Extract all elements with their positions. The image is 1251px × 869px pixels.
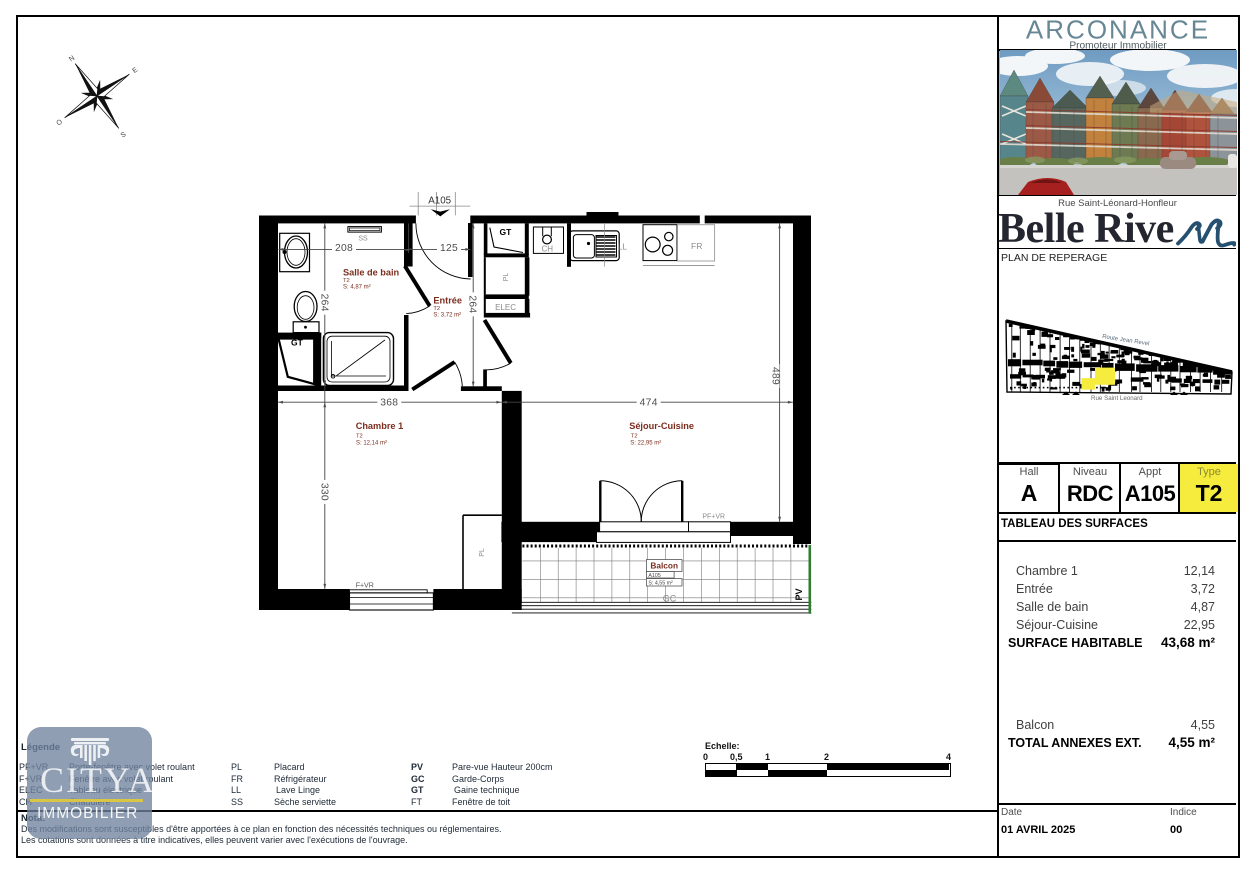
svg-text:GC: GC bbox=[663, 594, 677, 604]
svg-text:Séjour-Cuisine: Séjour-Cuisine bbox=[629, 421, 694, 431]
svg-text:PV: PV bbox=[794, 588, 804, 600]
svg-text:N: N bbox=[68, 55, 76, 64]
svg-text:S: 4,87 m²: S: 4,87 m² bbox=[343, 285, 371, 291]
svg-text:474: 474 bbox=[640, 398, 658, 409]
svg-text:S: 12,14 m²: S: 12,14 m² bbox=[356, 441, 387, 447]
svg-text:Chambre 1: Chambre 1 bbox=[356, 421, 404, 431]
svg-text:T2: T2 bbox=[343, 278, 350, 284]
svg-text:Balcon: Balcon bbox=[650, 561, 678, 571]
svg-text:S: 22,95 m²: S: 22,95 m² bbox=[630, 441, 661, 447]
svg-text:PL: PL bbox=[479, 548, 486, 557]
svg-text:SS: SS bbox=[358, 236, 368, 243]
svg-text:PL: PL bbox=[503, 273, 510, 282]
svg-text:GT: GT bbox=[291, 338, 304, 348]
svg-text:264: 264 bbox=[319, 294, 330, 312]
svg-text:368: 368 bbox=[380, 398, 398, 409]
svg-text:125: 125 bbox=[440, 243, 458, 254]
svg-text:208: 208 bbox=[335, 243, 353, 254]
svg-text:E: E bbox=[132, 66, 140, 75]
svg-text:T2: T2 bbox=[631, 434, 638, 440]
svg-text:T2: T2 bbox=[433, 306, 440, 312]
svg-text:Rue Saint Leonard: Rue Saint Leonard bbox=[1091, 395, 1143, 402]
svg-text:O: O bbox=[55, 118, 64, 127]
svg-text:264: 264 bbox=[467, 295, 478, 313]
svg-text:F+VR: F+VR bbox=[356, 583, 374, 590]
svg-text:A105: A105 bbox=[428, 196, 451, 207]
svg-text:PF+VR: PF+VR bbox=[702, 514, 725, 521]
svg-text:A105: A105 bbox=[648, 573, 660, 579]
svg-text:ELEC: ELEC bbox=[495, 303, 516, 312]
svg-text:Entrée: Entrée bbox=[433, 296, 462, 306]
svg-text:T2: T2 bbox=[356, 434, 363, 440]
svg-text:GT: GT bbox=[500, 227, 513, 237]
svg-text:S: 3,72 m²: S: 3,72 m² bbox=[433, 312, 461, 318]
svg-text:CH: CH bbox=[542, 244, 554, 253]
svg-text:LL: LL bbox=[618, 242, 628, 252]
svg-text:330: 330 bbox=[319, 483, 330, 501]
svg-text:FR: FR bbox=[691, 241, 702, 251]
svg-text:Salle de bain: Salle de bain bbox=[343, 267, 400, 277]
svg-text:S: 4,55 m²: S: 4,55 m² bbox=[648, 580, 673, 586]
svg-text:489: 489 bbox=[769, 367, 780, 385]
svg-text:S: S bbox=[120, 131, 128, 140]
